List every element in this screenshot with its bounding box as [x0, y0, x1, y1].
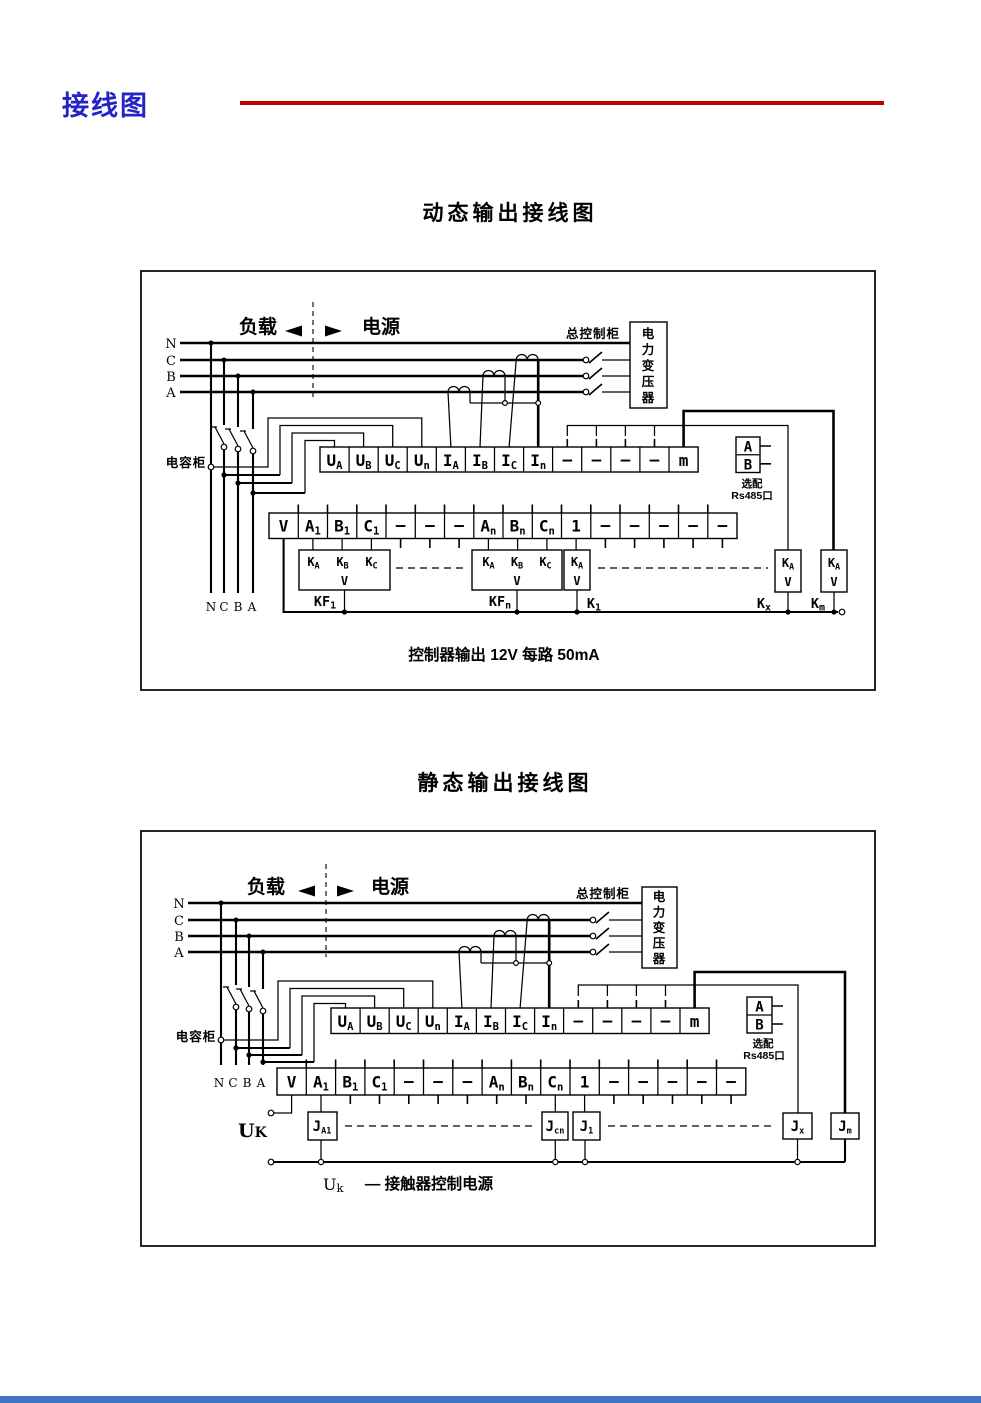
relay-tag: JA1 — [313, 1119, 332, 1137]
terminal-label: — — [463, 1072, 473, 1091]
phase-bottom-a: A — [247, 600, 257, 614]
relay-jx: Jx — [783, 1113, 812, 1162]
uk-supply: UK — [238, 1095, 292, 1142]
rs485-optional-label: 选配 — [753, 1037, 774, 1050]
phase-label-b: B — [166, 370, 176, 385]
document-page: 接线图 动态输出接线图 负载 电源 N C B A — [0, 0, 981, 1403]
terminal-label: Bn — [510, 517, 526, 538]
transformer-label: 电力变压器 — [641, 326, 656, 405]
terminal-label: — — [562, 450, 572, 469]
terminal-label: — — [454, 516, 464, 535]
rs485-b: B — [755, 1018, 763, 1034]
relay-ja1: JA1 — [308, 1095, 337, 1162]
current-transformers — [459, 915, 552, 1008]
terminal-label: — — [668, 1072, 678, 1091]
bus-lines — [188, 903, 642, 952]
terminal-label: — — [396, 516, 406, 535]
relay-cell-label: KA — [482, 555, 494, 572]
terminal-label: — — [621, 450, 631, 469]
main-cabinet-label: 总控制柜 — [566, 326, 620, 341]
terminal-label: UA — [327, 451, 344, 472]
terminal-label: 1 — [571, 517, 581, 536]
uk-label: UK — [238, 1120, 268, 1142]
terminal-label: Un — [425, 1012, 441, 1033]
rs485-a: A — [755, 1000, 764, 1016]
terminal-label: An — [489, 1073, 505, 1094]
terminal-label: — — [632, 1011, 642, 1030]
terminal-label: — — [425, 516, 435, 535]
terminal-label: UC — [385, 451, 401, 472]
rs485-block: A B 选配 Rs485口 — [743, 997, 784, 1062]
terminal-label: UB — [367, 1012, 383, 1033]
relay-tag: KFn — [489, 594, 511, 612]
source-label: 电源 — [362, 315, 400, 338]
rs485-a: A — [744, 440, 753, 456]
relay-k1: KA V K1 — [564, 539, 601, 614]
diagram2-title: 静态输出接线图 — [418, 771, 593, 795]
relay-tag: K1 — [587, 596, 601, 614]
phase-bottom-b: B — [243, 1076, 252, 1090]
rs485-b: B — [744, 458, 752, 474]
terminal-label: 1 — [580, 1073, 590, 1092]
relay-cell-label: KB — [511, 555, 523, 572]
terminal-label: Un — [414, 451, 430, 472]
relay-cell-label: KA — [571, 555, 583, 572]
cap-cabinet-label: 电容柜 — [166, 455, 207, 470]
relay-tag: Km — [811, 596, 825, 614]
main-cabinet-label: 总控制柜 — [576, 886, 630, 901]
relay-tag: Jcn — [546, 1119, 565, 1137]
terminal-label: C1 — [363, 517, 379, 538]
load-label: 负载 — [239, 315, 277, 338]
relay-cell-label: KB — [336, 555, 348, 572]
arrow-left-icon — [285, 326, 302, 337]
arrow-left-icon — [298, 886, 315, 897]
transformer-box: 电力变压器 — [630, 322, 667, 408]
phase-label-n: N — [165, 337, 176, 352]
phase-bottom-n: N — [214, 1076, 225, 1090]
rs485-port-label: Rs485口 — [743, 1050, 784, 1062]
phase-label-n: N — [173, 897, 184, 912]
diagram2: 负载 电源 N C B A 总控制柜 电力变压器 — [173, 864, 859, 1195]
terminal-label: — — [433, 1072, 443, 1091]
relay-v-label: V — [513, 574, 520, 588]
terminal-label: In — [541, 1012, 557, 1033]
relay-cell-label: KC — [365, 555, 377, 572]
terminal-label: B1 — [342, 1073, 358, 1094]
relay-cell-label: KC — [539, 555, 551, 572]
diagram1: 负载 电源 N C B A 总控制柜 电力变压器 — [165, 302, 847, 664]
terminal-label: UB — [356, 451, 372, 472]
terminal-label: IA — [454, 1012, 471, 1033]
terminal-label: — — [659, 516, 669, 535]
terminal-label: — — [609, 1072, 619, 1091]
phase-bottom-c: C — [219, 600, 228, 614]
terminal-label: UC — [396, 1012, 412, 1033]
terminal-label: IA — [443, 451, 460, 472]
terminal-label: — — [650, 450, 660, 469]
phase-label-a: A — [165, 386, 176, 401]
terminal-strip-2: V A1 B1 C1 — — — An Bn Cn 1 — — — — — — [277, 1060, 746, 1105]
load-label: 负载 — [247, 875, 285, 898]
relay-v-label: V — [830, 575, 837, 589]
relay-km: KA V Km — [811, 550, 847, 614]
terminal-label: — — [630, 516, 640, 535]
terminal-label: — — [404, 1072, 414, 1091]
terminal-label: — — [603, 1011, 613, 1030]
rs485-optional-label: 选配 — [742, 477, 763, 490]
terminal-label: — — [592, 450, 602, 469]
terminal-label: In — [530, 451, 546, 472]
terminal-label: Cn — [547, 1073, 563, 1094]
terminal-label: IC — [512, 1012, 528, 1033]
phase-bottom-c: C — [228, 1076, 237, 1090]
relay-tag: Jx — [791, 1119, 805, 1137]
main-switches — [590, 912, 609, 955]
phase-label-c: C — [166, 354, 176, 369]
terminal-label: IC — [501, 451, 517, 472]
rs485-block: A B 选配 Rs485口 — [731, 437, 772, 502]
arrow-right-icon — [337, 886, 354, 897]
wiring-diagrams: 动态输出接线图 负载 电源 N C B A 总控制柜 — [0, 0, 981, 1403]
terminal-label: — — [638, 1072, 648, 1091]
uk-caption-symbol: Uk — [323, 1175, 344, 1195]
uk-bottom-bus — [268, 1139, 845, 1165]
relay-kf1: KA KB KC V KF1 — [299, 539, 390, 613]
relay-j1: J1 — [573, 1095, 600, 1162]
terminal-label: A1 — [313, 1073, 329, 1094]
source-label: 电源 — [371, 875, 409, 898]
terminal-label: — — [601, 516, 611, 535]
relay-cell-label: KA — [828, 556, 840, 573]
bus-lines — [180, 343, 630, 392]
relay-cell-label: KA — [307, 555, 319, 572]
relay-v-label: V — [784, 575, 791, 589]
terminal-label: A1 — [305, 517, 321, 538]
relay-tag: Kx — [757, 596, 771, 614]
terminal-label: — — [726, 1072, 736, 1091]
terminal-label: UA — [338, 1012, 355, 1033]
terminal-label: IB — [472, 451, 488, 472]
diagram1-title: 动态输出接线图 — [423, 201, 598, 225]
phase-bottom-a: A — [256, 1076, 266, 1090]
terminal-label: — — [697, 1072, 707, 1091]
terminal-label: IB — [483, 1012, 499, 1033]
relay-v-label: V — [341, 574, 348, 588]
terminal-strip-2: V A1 B1 C1 — — — An Bn Cn 1 — — — — — — [269, 505, 737, 549]
relay-tag: KF1 — [314, 594, 336, 612]
terminal-label: m — [679, 451, 689, 470]
terminal-label: — — [573, 1011, 583, 1030]
terminal-label: Cn — [539, 517, 555, 538]
rs485-port-label: Rs485口 — [731, 490, 772, 502]
phase-label-c: C — [174, 914, 184, 929]
phase-bottom-n: N — [206, 600, 217, 614]
main-switches — [583, 352, 602, 395]
uk-caption-text: — 接触器控制电源 — [365, 1174, 494, 1193]
terminal-label: — — [688, 516, 698, 535]
terminal-label: — — [661, 1011, 671, 1030]
relay-kfn: KA KB KC V KFn — [472, 539, 562, 613]
terminal-label: — — [718, 516, 728, 535]
terminal-label: m — [690, 1012, 700, 1031]
terminal-label: B1 — [334, 517, 350, 538]
terminal-label: C1 — [372, 1073, 388, 1094]
terminal-label: V — [287, 1073, 297, 1092]
transformer-box: 电力变压器 — [642, 887, 677, 968]
transformer-label: 电力变压器 — [652, 889, 667, 966]
arrow-right-icon — [325, 326, 342, 337]
terminal-label: Bn — [518, 1073, 534, 1094]
terminal-label: An — [480, 517, 496, 538]
relay-v-label: V — [573, 574, 580, 588]
relay-tag: Jm — [838, 1119, 852, 1137]
diagram2-caption: Uk — 接触器控制电源 — [323, 1174, 494, 1195]
current-transformers — [448, 355, 541, 448]
phase-bottom-b: B — [234, 600, 243, 614]
cap-cabinet-label: 电容柜 — [176, 1029, 217, 1044]
relay-tag: J1 — [580, 1119, 594, 1137]
footer-bar — [0, 1396, 981, 1403]
phase-label-a: A — [173, 946, 184, 961]
relay-jcn: Jcn — [542, 1095, 568, 1162]
phase-label-b: B — [174, 930, 184, 945]
relay-cell-label: KA — [782, 556, 794, 573]
terminal-label: V — [279, 517, 289, 536]
diagram1-caption: 控制器输出 12V 每路 50mA — [408, 645, 599, 664]
relay-jm: Jm — [831, 1113, 859, 1139]
relay-kx: KA V Kx — [757, 550, 801, 614]
